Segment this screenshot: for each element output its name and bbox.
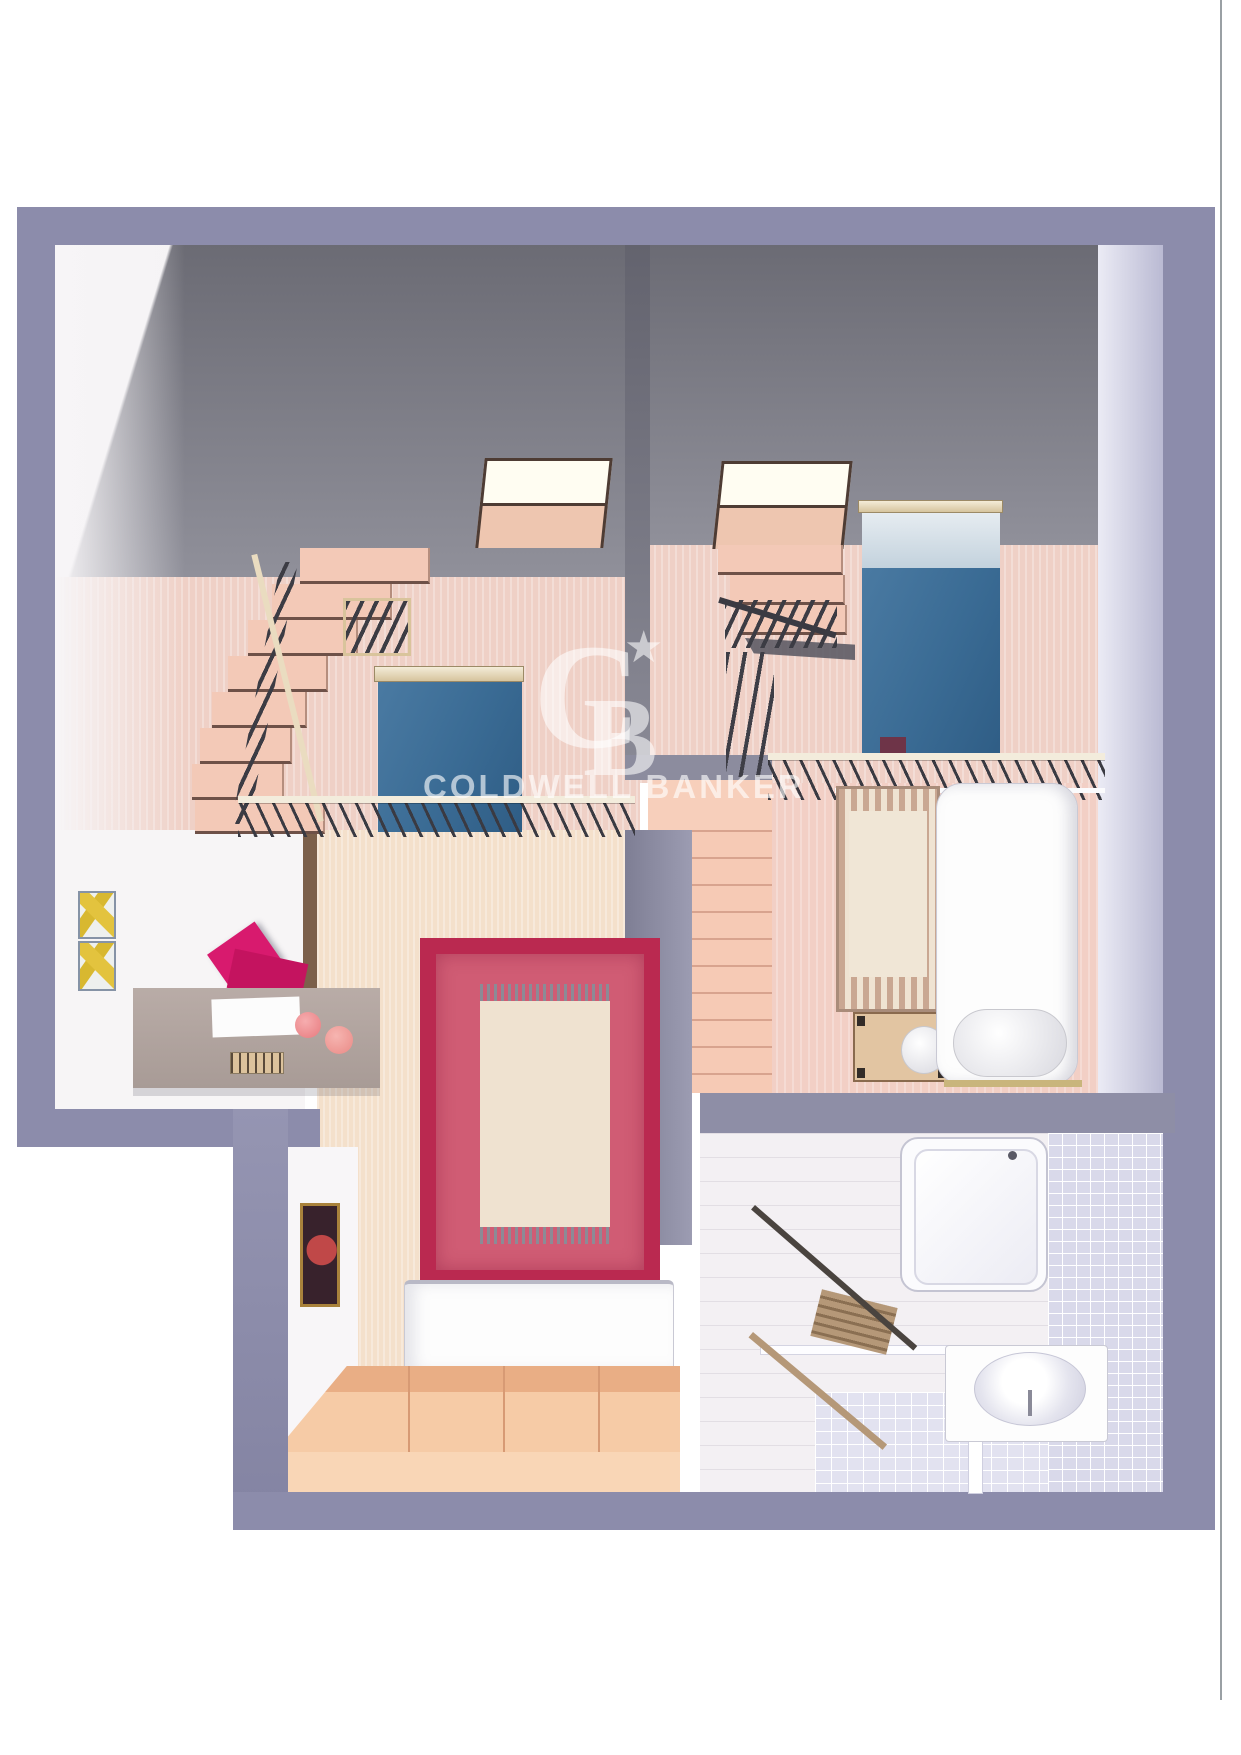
runner-rug-center: [849, 811, 927, 977]
outer-wall-left-lower: [233, 1109, 288, 1530]
outer-wall-top: [17, 207, 1215, 245]
single-bed-right-room: [862, 568, 1000, 760]
stair-step: [718, 545, 843, 575]
bed-headboard-bar-right: [858, 500, 1003, 513]
table-leg: [857, 1016, 865, 1026]
desk-cup: [295, 1012, 321, 1038]
lounge-railing-handrail: [768, 753, 1105, 760]
bed-pillow-right: [862, 513, 1000, 568]
chaise-cushion-roll: [953, 1009, 1067, 1077]
paper-sheet: [211, 996, 300, 1037]
chaise-longue: [936, 783, 1078, 1085]
outer-wall-left: [17, 207, 55, 1147]
rug-fringe-top: [480, 984, 610, 1001]
skylight-glass: [717, 461, 853, 508]
loft-wood-wall-strip: [303, 830, 317, 1010]
bathtub-basin: [914, 1149, 1038, 1285]
watermark-brand-text: COLDWELL BANKER: [423, 768, 805, 806]
rug-fringe-bottom: [480, 1227, 610, 1244]
stair-step: [300, 548, 430, 584]
central-dividing-wall: [625, 245, 650, 773]
wardrobe-seam: [503, 1366, 505, 1452]
skylight-right-room: [712, 461, 852, 549]
floor-plan-rendering: C B ★ COLDWELL BANKER: [0, 0, 1241, 1755]
master-bed-headboard: [404, 1280, 674, 1372]
outer-wall-bottom: [233, 1492, 1215, 1530]
chaise-base-trim: [944, 1080, 1082, 1087]
loft-railing-balusters: [238, 803, 635, 837]
wardrobe-seam: [598, 1366, 600, 1452]
skylight-glass: [480, 458, 613, 506]
page-edge-scan-line: [1220, 0, 1222, 1700]
table-leg: [857, 1068, 865, 1078]
skylight-sill: [712, 508, 847, 549]
landing-railing-panel: [343, 598, 411, 656]
stairwell-down-strip: [692, 830, 772, 1093]
bathroom-north-wall: [700, 1093, 1175, 1133]
west-wall-face: [55, 245, 185, 830]
sink-counter: [945, 1345, 1108, 1442]
desk-shadow: [133, 1088, 380, 1096]
bed-headboard-bar-left: [374, 666, 524, 682]
desk-keyboard: [230, 1052, 284, 1074]
sink-faucet: [1028, 1390, 1032, 1416]
wall-artwork-lower: [78, 941, 116, 991]
red-area-rug: [420, 938, 660, 1286]
desk: [133, 988, 380, 1088]
wall-portrait-painting: [300, 1203, 340, 1307]
skylight-sill: [475, 506, 607, 548]
stair-baluster-column: [726, 652, 774, 777]
wall-artwork-upper: [78, 891, 116, 939]
wardrobe-platform: [288, 1366, 680, 1492]
east-wall-face: [1098, 245, 1163, 1093]
bathtub: [900, 1137, 1048, 1292]
bathtub-faucet: [1008, 1151, 1017, 1160]
striped-runner-rug: [836, 786, 940, 1012]
rug-center-panel: [480, 1001, 610, 1227]
outer-wall-right: [1163, 207, 1215, 1530]
wardrobe-seam: [408, 1366, 410, 1452]
skylight-left-room: [475, 458, 612, 548]
desk-cup: [325, 1026, 353, 1054]
